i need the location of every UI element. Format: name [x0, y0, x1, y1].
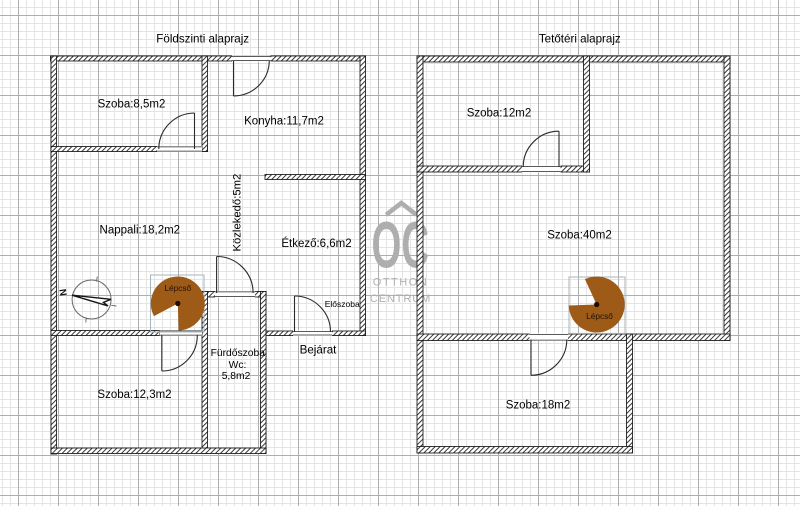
svg-text:Szoba:12m2: Szoba:12m2 [467, 108, 532, 120]
svg-text:N: N [58, 288, 70, 297]
svg-text:Fürdőszoba: Fürdőszoba [211, 348, 266, 359]
svg-text:Lépcső: Lépcső [586, 311, 613, 321]
svg-text:Szoba:18m2: Szoba:18m2 [506, 400, 571, 412]
svg-text:Szoba:12,3m2: Szoba:12,3m2 [97, 389, 171, 401]
svg-text:Lépcső: Lépcső [164, 283, 191, 293]
svg-text:Étkező:6,6m2: Étkező:6,6m2 [281, 237, 351, 250]
svg-text:Földszinti alaprajz: Földszinti alaprajz [156, 32, 249, 45]
svg-text:Szoba:40m2: Szoba:40m2 [547, 229, 612, 241]
svg-text:5,8m2: 5,8m2 [222, 371, 251, 382]
svg-text:Nappali:18,2m2: Nappali:18,2m2 [100, 224, 181, 236]
svg-text:Tetőtéri alaprajz: Tetőtéri alaprajz [539, 32, 621, 45]
svg-text:Közlekedő:5m2: Közlekedő:5m2 [232, 174, 244, 252]
svg-text:Előszoba: Előszoba [325, 299, 360, 309]
svg-text:Bejárat: Bejárat [300, 343, 338, 356]
svg-text:Konyha:11,7m2: Konyha:11,7m2 [244, 115, 324, 127]
svg-text:Szoba:8,5m2: Szoba:8,5m2 [98, 99, 166, 111]
svg-text:Wc:: Wc: [229, 360, 247, 371]
